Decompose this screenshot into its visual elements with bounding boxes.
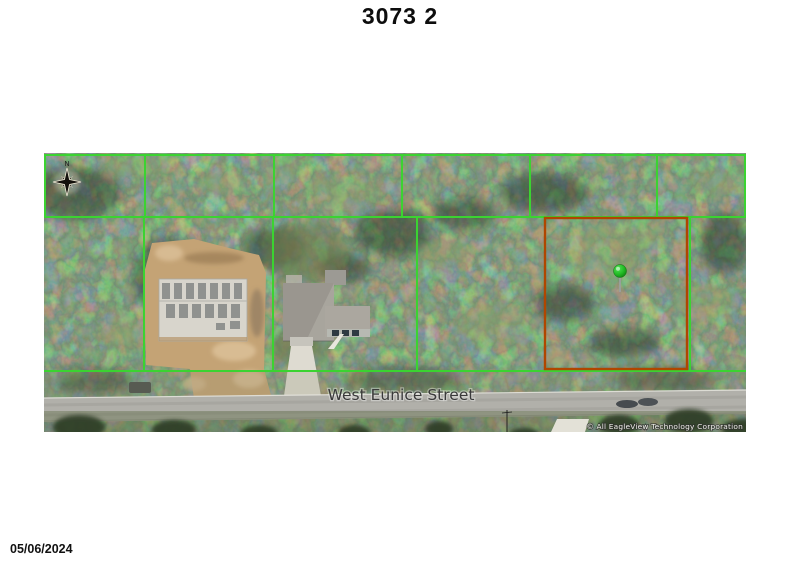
- copyright-label: © All EagleView Technology Corporation: [586, 422, 743, 431]
- report-page: 3073 2: [0, 0, 800, 565]
- report-date: 05/06/2024: [10, 542, 73, 556]
- concrete-pad: [551, 419, 589, 432]
- vehicle-on-road: [638, 398, 658, 406]
- street-label: West Eunice Street: [328, 386, 475, 404]
- aerial-map: N West Eunice Street © All EagleView Tec…: [44, 153, 746, 432]
- compass-north-letter: N: [64, 160, 69, 168]
- windows: [332, 330, 359, 336]
- vehicle-on-road: [616, 400, 638, 408]
- page-title: 3073 2: [0, 3, 800, 30]
- aerial-photo: N West Eunice Street © All EagleView Tec…: [44, 153, 746, 432]
